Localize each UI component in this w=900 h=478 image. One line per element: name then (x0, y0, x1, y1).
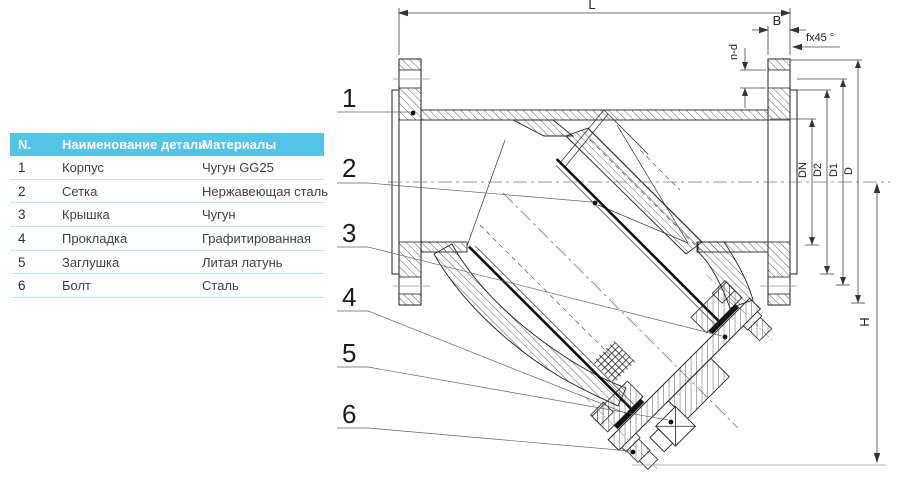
dimension-B: B (752, 13, 806, 55)
dim-label-D: D (843, 167, 855, 175)
dim-label-H: H (857, 317, 872, 326)
table-row: 5 Заглушка Литая латунь (10, 251, 324, 275)
table-row: 2 Сетка Нержавеющая сталь (10, 180, 324, 204)
dim-label-D2: D2 (812, 163, 824, 177)
table-row: 3 Крышка Чугун (10, 203, 324, 227)
dim-label-B: B (773, 13, 782, 28)
cell-material: Литая латунь (194, 255, 324, 270)
cell-number: 2 (10, 184, 54, 199)
callout-2: 2 (342, 153, 356, 183)
callout-4: 4 (342, 282, 356, 312)
cell-number: 6 (10, 278, 54, 293)
dimension-chamfer: fx45 ° (793, 32, 840, 47)
header-n: N. (10, 137, 54, 152)
dimension-H: H (857, 184, 877, 462)
cell-number: 1 (10, 160, 54, 175)
dimension-bolt-holes: n-d (728, 44, 766, 108)
cell-part-name: Корпус (54, 160, 194, 175)
branch-curved-wall (434, 244, 626, 406)
cell-material: Чугун GG25 (194, 160, 324, 175)
dim-label-DN: DN (797, 162, 809, 178)
table-row: 4 Прокладка Графитированная (10, 227, 324, 251)
cell-material: Чугун (194, 207, 324, 222)
cell-part-name: Заглушка (54, 255, 194, 270)
dim-label-chamfer: fx45 ° (806, 32, 834, 44)
parts-table: N. Наименование детали Материалы 1 Корпу… (10, 133, 324, 298)
dim-label-D1: D1 (828, 163, 840, 177)
cell-number: 4 (10, 231, 54, 246)
cell-number: 5 (10, 255, 54, 270)
part-callout-numbers: 1 2 3 4 5 6 (342, 83, 356, 429)
dim-label-bolt-holes: n-d (728, 44, 740, 60)
cell-part-name: Крышка (54, 207, 194, 222)
table-row: 6 Болт Сталь (10, 274, 324, 298)
cell-number: 3 (10, 207, 54, 222)
callout-3: 3 (342, 218, 356, 248)
callout-5: 5 (342, 338, 356, 368)
header-material: Материалы (194, 137, 324, 152)
table-row: 1 Корпус Чугун GG25 (10, 156, 324, 180)
cell-material: Нержавеющая сталь (194, 184, 328, 199)
callout-6: 6 (342, 399, 356, 429)
table-header: N. Наименование детали Материалы (10, 133, 324, 156)
cell-material: Графитированная (194, 231, 324, 246)
cell-part-name: Болт (54, 278, 194, 293)
cell-part-name: Прокладка (54, 231, 194, 246)
cell-material: Сталь (194, 278, 324, 293)
header-part-name: Наименование детали (54, 137, 194, 152)
dim-label-L: L (588, 0, 595, 12)
page: L B fx45 ° n-d (0, 0, 900, 478)
callout-1: 1 (342, 83, 356, 113)
cell-part-name: Сетка (54, 184, 194, 199)
